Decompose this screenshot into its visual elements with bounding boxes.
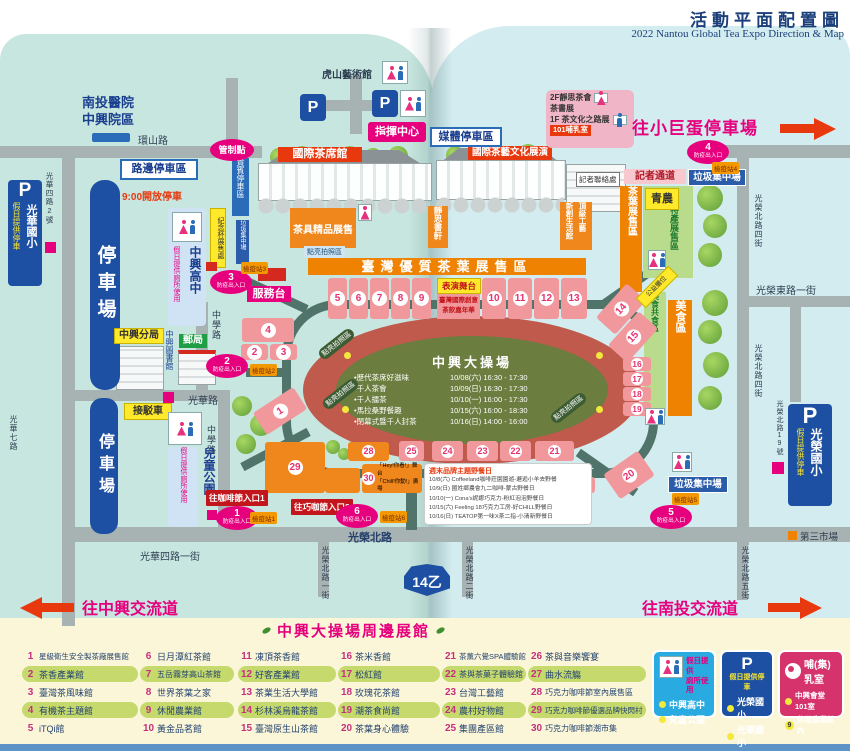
zhongxing-high-label: 中興高中 <box>187 246 204 294</box>
quarantine-station-4: 檢疫站4 <box>712 162 739 174</box>
police-building <box>116 346 164 390</box>
male-icon <box>416 97 421 111</box>
legend-label: 有機茶主題館 <box>39 704 93 717</box>
event-time: 10/15(六) 16:00 - 18:30 <box>450 406 528 417</box>
service-desk-label: 服務台 <box>247 286 291 302</box>
tree-icon <box>698 386 722 410</box>
legend-item: 16茶米香館 <box>338 648 440 664</box>
legend-num: 19 <box>338 705 355 716</box>
female-icon <box>674 455 683 469</box>
legend-num: 10 <box>140 723 157 734</box>
legend-item: 3臺灣茶風味館 <box>22 684 138 700</box>
bullet-dot <box>727 733 734 740</box>
legend-item: 15臺灣原生山茶館 <box>238 720 336 736</box>
legend-label: iTQi館 <box>39 722 65 735</box>
expo-map: 活動平面配置圖 2022 Nantou Global Tea Expo Dire… <box>0 0 850 751</box>
booth-9: 9 <box>412 278 431 319</box>
top-craft-label: 頂級工藝 <box>577 202 588 250</box>
booth-number: 13 <box>567 291 582 306</box>
road-left-main <box>62 146 75 626</box>
legend-label: 茶薰六覺SPA體驗館 <box>459 651 526 662</box>
p-icon: P <box>788 404 832 428</box>
info-toilet-box: 假日提供 廁所使用 中興高中 兒童公園 <box>652 650 716 718</box>
female-icon <box>663 660 672 674</box>
bullet-dot <box>727 705 734 712</box>
legend-label: 茶與茶菓子體驗館 <box>459 669 523 680</box>
legend-label: 休閒農業館 <box>157 704 202 717</box>
stadium-event: •歷代茶席好滋味10/08(六) 16:30 - 17:30 <box>354 373 590 384</box>
legend-label: 曲水流觴 <box>545 668 581 681</box>
booth-4: 4 <box>242 318 294 342</box>
road-label-guangrong-n5: 光榮北路五街 <box>740 546 751 600</box>
parking-guangrong-box: P 假日提供停車 光榮國小 <box>788 404 832 506</box>
third-market-label: 第三市場 <box>800 529 838 543</box>
quarantine-station-3: 檢疫站3 <box>241 262 268 274</box>
legend-label: 茶香產業館 <box>39 668 84 681</box>
quarantine-station-1: 檢疫站1 <box>250 512 277 524</box>
bottom-bar <box>0 744 850 751</box>
booth-number: 1 <box>270 401 291 422</box>
tree-icon <box>702 290 728 316</box>
event-name: •千人茶會 <box>354 384 450 395</box>
legend-label: 巧克力咖啡節室內展售區 <box>545 687 633 698</box>
booth-number: 18 <box>631 388 643 400</box>
male-icon <box>398 66 403 80</box>
legend-num: 1 <box>22 651 39 662</box>
epidemic-entrance-6: 6防疫出入口 <box>336 504 378 528</box>
road-bottom-main <box>75 527 850 542</box>
restroom-icon <box>400 90 426 117</box>
right-arrow-icon <box>800 597 822 619</box>
right-arrow-bar <box>768 603 800 612</box>
holiday-parking-label: 假日提供停車 <box>11 202 22 250</box>
epidemic-entrance-2: 2防疫出入口 <box>206 354 248 378</box>
booth-8: 8 <box>391 278 410 319</box>
parking-lot-bar-2: 停車場 <box>90 398 118 534</box>
legend-num: 8 <box>140 687 157 698</box>
bullet-dot <box>659 701 666 708</box>
booth-28: 28 <box>348 442 389 461</box>
jingsi-info-box: 2F靜思茶會 茶書展 1F 茶文化之路展 101哺乳室 <box>546 90 634 148</box>
legend-label: 茶業生活大學館 <box>255 686 318 699</box>
stadium-title: 中興大操場 <box>432 352 512 371</box>
nursing-icon <box>785 663 801 679</box>
legend-num: 18 <box>338 687 355 698</box>
quarantine-station-6: 檢疫站6 <box>380 511 407 523</box>
road-right-small <box>790 307 801 402</box>
vip-parking-strip: 貴賓停車區 <box>232 158 249 216</box>
booth-number: 28 <box>362 445 375 458</box>
toilet-title-2: 廁所使用 <box>686 676 709 695</box>
event-name: •馬拉桑野餐趣 <box>354 406 450 417</box>
restroom-icon <box>645 408 665 425</box>
legend-label: 臺灣茶風味館 <box>39 686 93 699</box>
entrance-number: 5 <box>650 508 692 518</box>
post-office-label: 郵局 <box>179 334 207 348</box>
road-label-guanghua4-1st: 光華四路一街 <box>140 548 200 563</box>
booth-5: 5 <box>328 278 347 319</box>
legend-item: 12好客產業館 <box>238 666 336 682</box>
legend-item: 24農村好物館 <box>442 702 526 718</box>
legend-label: 臺灣原生山茶館 <box>255 722 318 735</box>
open-930-label: 9:00開放停車 <box>122 188 182 203</box>
parking-guanghua-box: P 假日提供停車 光華國小 <box>8 180 42 286</box>
booth-6: 6 <box>349 278 368 319</box>
young-farmer-label: 青農 <box>645 188 679 210</box>
legend-label: 茶葉身心體驗 <box>355 722 409 735</box>
legend-num: 17 <box>338 669 355 680</box>
road-label-guangrong-19: 光榮北路19號 <box>774 400 784 456</box>
nursing-item: 中興會堂101室 <box>795 690 837 712</box>
jingsi-shop-box: 靜思書軒 <box>428 206 448 248</box>
legend-item: 10黃金品茗館 <box>140 720 234 736</box>
badge-9-icon: 9 <box>785 721 794 730</box>
third-market-marker <box>788 531 797 540</box>
hospital-line1: 南投醫院 <box>82 95 172 112</box>
legend-num: 29 <box>528 705 545 716</box>
legend-num: 13 <box>238 687 255 698</box>
event-time: 10/16(日) 14:00 - 16:00 <box>450 417 528 428</box>
booth-18: 18 <box>623 387 651 401</box>
legend-label: 松紅館 <box>355 668 382 681</box>
restroom-icon <box>168 412 202 445</box>
male-icon <box>674 660 679 674</box>
building-tea-culture <box>436 160 566 200</box>
marker-square <box>45 242 56 253</box>
parking-lot-label: 停車場 <box>92 433 116 499</box>
picnic-line: 10/16(日) TEATOP第一味X茶二指-小清新野餐日 <box>429 513 587 522</box>
control-point-label: 管制點 <box>210 139 254 161</box>
entrance-number: 6 <box>336 507 378 517</box>
photo-spot-label: 點亮拍照區 <box>304 246 345 258</box>
picnic-line: 10/15(六) Feeling 18巧克力工房-好CHILL野餐日 <box>429 504 587 513</box>
booth-12: 12 <box>534 278 559 319</box>
picnic-title: 週末品牌主題野餐日 <box>429 466 587 476</box>
road-label-guangrong-n4-b: 光榮北路四街 <box>753 344 764 398</box>
trash-strip-small: 垃圾集中場 <box>236 220 249 264</box>
event-time: 10/09(日) 16:30 - 17:30 <box>450 384 528 395</box>
entrance-number: 3 <box>210 273 252 283</box>
legend-label: 世界茶葉之家 <box>157 686 211 699</box>
legend-num: 21 <box>442 651 459 662</box>
male-icon <box>188 422 193 436</box>
jingsi-shop-label: 靜思書軒 <box>432 206 444 248</box>
booth-number: 17 <box>631 373 643 385</box>
legend-item: 28巧克力咖啡節室內展售區 <box>528 684 646 700</box>
legend-item: 29巧克力咖啡節優選品牌快閃村 <box>528 702 646 718</box>
legend-num: 23 <box>442 687 459 698</box>
legend-item: 9休閒農業館 <box>140 702 234 718</box>
legend-num: 6 <box>140 651 157 662</box>
press-way-label: 記者通道 <box>624 169 686 184</box>
legend-item: 18玫瑰花茶館 <box>338 684 440 700</box>
to-dome-label: 往小巨蛋停車場 <box>632 114 758 139</box>
event-time: 10/08(六) 16:30 - 17:30 <box>450 373 528 384</box>
picnic-line: 10/9(日) 國姓鄉農會九二咖啡-蒙古野餐日 <box>429 485 587 494</box>
booth-16: 16 <box>623 357 651 371</box>
event-name: •千人擂茶 <box>354 395 450 406</box>
restroom-icon <box>672 452 692 472</box>
legend-label: 黃金品茗館 <box>157 722 202 735</box>
female-icon <box>649 253 658 267</box>
legend-label: 玫瑰花茶館 <box>355 686 400 699</box>
event-time: 10/10(一) 16:00 - 17:30 <box>450 395 528 406</box>
food-share-label: 美食共食區 <box>650 292 661 416</box>
booth-number: 2 <box>247 345 262 360</box>
legend-label: 五岳霧芽高山茶館 <box>157 669 221 680</box>
legend-item: 19潮茶食尚館 <box>338 702 440 718</box>
female-icon <box>647 410 656 424</box>
booth-24: 24 <box>432 441 463 461</box>
legend-item: 25集團產區館 <box>442 720 526 736</box>
teaware-sale-box: 茶具精品展售 <box>290 208 356 248</box>
legend-num: 9 <box>140 705 157 716</box>
booth-number: 11 <box>513 291 528 306</box>
booth-number: 6 <box>351 291 366 306</box>
craft-hall-box: 新創生活館 頂級工藝 <box>560 202 592 250</box>
parking-lot-label: 停車場 <box>92 245 119 326</box>
legend-num: 3 <box>22 687 39 698</box>
parking-item: 光華國小 <box>737 723 767 749</box>
booth-25: 25 <box>399 441 424 461</box>
female-icon <box>405 97 414 111</box>
booth-30-text: 「Hey!你看!」舞台 「Chill!你動!」廣場 <box>377 463 422 494</box>
female-icon <box>597 91 606 105</box>
booth-number: 4 <box>261 323 276 338</box>
road-label-guangrong-n2: 光榮北路二街 <box>464 546 475 600</box>
legend-label: 茶與音樂饗宴 <box>545 650 599 663</box>
entrance-label: 防疫出入口 <box>207 367 247 373</box>
toilet-title-1: 假日提供 <box>686 656 709 675</box>
legend-label: 巧克力咖啡節潮市集 <box>545 723 617 734</box>
food-strip: 美食區 <box>668 300 692 416</box>
holiday-toilet-label: 假日提供廁所使用 <box>171 246 181 302</box>
toilet-item: 兒童公園 <box>669 713 705 726</box>
road-right-main <box>737 155 749 545</box>
marker-square <box>163 392 174 403</box>
road-label-guanghua7: 光華七路 <box>8 415 19 451</box>
road-label-guangrong-n4-a: 光榮北路四街 <box>753 194 764 248</box>
hospital-line2: 中興院區 <box>82 112 172 129</box>
legend-label: 杉林溪烏龍茶館 <box>255 704 318 717</box>
guanghua-es-label: 光華國小 <box>23 202 39 250</box>
picnic-line: 10/10(一) Cona's妮娜巧克力-粉紅泡泡野餐日 <box>429 495 587 504</box>
legend-num: 11 <box>238 651 255 662</box>
legend-num: 28 <box>528 687 545 698</box>
hey-line2: 「Chill!你動!」廣場 <box>377 479 418 493</box>
legend-label: 集團產區館 <box>459 722 504 735</box>
f2-line1: 2F靜思茶會 <box>550 93 591 104</box>
legend-num: 15 <box>238 723 255 734</box>
tiger-hill-label: 虎山藝術館 <box>322 66 372 81</box>
restroom-icon <box>172 212 202 242</box>
tree-icon <box>697 185 723 211</box>
building-b-awnings <box>436 196 564 213</box>
female-icon <box>177 422 186 436</box>
entrance-label: 防疫出入口 <box>211 283 251 289</box>
legend-num: 20 <box>338 723 355 734</box>
road-guangrong-e1 <box>748 296 850 307</box>
holiday-parking-label: 假日提供停車 <box>795 428 806 476</box>
tree-icon <box>703 352 729 378</box>
hospital-marker <box>92 133 130 142</box>
booth-29-extension <box>325 468 360 493</box>
left-arrow-bar <box>42 603 74 612</box>
booth-number: 21 <box>548 445 561 458</box>
children-park-toilet-box: 假日提供廁所使用 <box>168 447 198 527</box>
map-subtitle: 2022 Nantou Global Tea Expo Direction & … <box>500 28 844 40</box>
trash-label-right: 垃圾集中場 <box>668 476 728 493</box>
legend-title: 中興大操場周邊展館 <box>262 620 445 641</box>
booth-30: 30 「Hey!你看!」舞台 「Chill!你動!」廣場 <box>362 464 422 493</box>
legend-num: 22 <box>442 669 459 680</box>
booth-number: 24 <box>441 445 454 458</box>
stadium-infield: 中興大操場 •歷代茶席好滋味10/08(六) 16:30 - 17:30 •千人… <box>336 336 608 444</box>
info-parking-box: P 假日提供停車 光榮國小 光華國小 <box>720 650 774 718</box>
booth-17: 17 <box>623 372 651 386</box>
legend-item: 8世界茶葉之家 <box>140 684 234 700</box>
legend-num: 7 <box>140 669 157 680</box>
booth-number: 10 <box>487 291 502 306</box>
legend-item: 27曲水流觴 <box>528 666 646 682</box>
intl-tea-hall-banner: 國際茶席館 <box>278 147 362 162</box>
booth-number: 3 <box>276 345 291 360</box>
shuttle-label: 接駁車 <box>124 403 172 420</box>
legend-item: 14杉林溪烏龍茶館 <box>238 702 336 718</box>
road-north-stub <box>226 78 238 148</box>
light-dot <box>596 352 603 359</box>
marker-square <box>206 262 217 271</box>
light-dot <box>344 352 351 359</box>
booth-number: 7 <box>372 291 387 306</box>
tea-drink-carnival: 臺灣國際創意 茶飲嘉年華 <box>437 294 480 319</box>
tea-banner: 臺灣優質茶葉展售區 <box>308 258 586 275</box>
entrance-label: 防疫出入口 <box>688 153 728 159</box>
marker-square <box>772 462 784 474</box>
legend-item: 5iTQi館 <box>22 720 138 736</box>
tea-sale-strip: 茶葉展售區 <box>620 186 642 292</box>
legend-item: 26茶與音樂饗宴 <box>528 648 646 664</box>
legend-item: 1星級衛生安全製茶廠展售館 <box>22 648 138 664</box>
leaf-icon <box>261 626 271 635</box>
legend-num: 24 <box>442 705 459 716</box>
legend-item: 21茶薰六覺SPA體驗館 <box>442 648 526 664</box>
road-label-guangrong-n: 光榮北路 <box>348 529 392 545</box>
hospital-label: 南投醫院 中興院區 <box>82 95 172 129</box>
stage-label: 表演舞台 <box>437 278 481 294</box>
quarantine-station-5: 檢疫站5 <box>672 493 699 505</box>
legend-num: 16 <box>338 651 355 662</box>
holiday-toilet-title: 假日提供 廁所使用 <box>686 656 709 695</box>
light-dot <box>342 406 349 413</box>
left-arrow-icon <box>20 597 42 619</box>
legend-num: 14 <box>238 705 255 716</box>
road-label-huanshan: 環山路 <box>138 132 168 147</box>
vip-parking-label: 貴賓停車區 <box>235 158 246 216</box>
media-parking-label: 媒體停車區 <box>430 127 502 147</box>
police-label: 中興分局 <box>114 328 164 344</box>
restroom-icon <box>659 656 683 678</box>
booth-number: 23 <box>476 445 489 458</box>
f1-line: 1F 茶文化之路展 <box>550 115 610 126</box>
stadium-event: •千人茶會10/09(日) 16:30 - 17:30 <box>354 384 590 395</box>
male-icon <box>685 455 690 469</box>
p-icon: P <box>8 180 42 202</box>
female-icon <box>361 206 370 220</box>
tea-sale-strip-label: 茶葉展售區 <box>624 186 639 292</box>
nursing-101-label: 101哺乳室 <box>550 125 591 135</box>
restroom-icon <box>382 61 408 84</box>
tree-icon <box>698 320 722 344</box>
road-label-guanghua4-2: 光華四路2號 <box>44 172 55 225</box>
booth-number: 16 <box>631 358 643 370</box>
legend-item: 30巧克力咖啡節潮市集 <box>528 720 646 736</box>
legend-item: 2茶香產業館 <box>22 666 138 682</box>
legend-item: 17松紅館 <box>338 666 440 682</box>
nursing-title: 哺(集)乳室 <box>804 656 837 686</box>
event-name: •閉幕式暨千人封茶 <box>354 417 450 428</box>
bullet-dot <box>659 716 666 723</box>
legend-num: 5 <box>22 723 39 734</box>
tea-culture-banner: 國際茶藝文化展演 <box>468 146 552 160</box>
booth-7: 7 <box>370 278 389 319</box>
legend-label: 潮茶食尚館 <box>355 704 400 717</box>
info-nursing-box: 哺(集)乳室 中興會堂101室 9 休閒農業館內 <box>778 650 844 718</box>
leaf-icon <box>435 626 445 635</box>
legend-item: 13茶業生活大學館 <box>238 684 336 700</box>
tree-icon <box>698 243 722 267</box>
legend-label: 凍頂茶香館 <box>255 650 300 663</box>
building-intl-tea-hall <box>258 163 432 201</box>
children-park-label: 兒童公園 <box>201 447 218 495</box>
quarantine-station-2: 檢疫站2 <box>250 364 277 376</box>
restroom-icon <box>613 115 627 125</box>
tree-icon <box>232 396 252 416</box>
booth-number: 15 <box>622 326 643 347</box>
booth-number: 20 <box>619 465 640 486</box>
new-life-hall-label: 新創生活館 <box>564 202 575 250</box>
female-icon <box>179 220 188 234</box>
legend-item: 6日月潭紅茶館 <box>140 648 234 664</box>
legend-item: 11凍頂茶香館 <box>238 648 336 664</box>
legend-num: 25 <box>442 723 459 734</box>
legend-label: 星級衛生安全製茶廠展售館 <box>39 651 129 662</box>
guangrong-es-label: 光榮國小 <box>808 428 825 476</box>
holiday-parking-title: 假日提供停車 <box>727 672 767 692</box>
restroom-icon <box>358 204 372 221</box>
nursing-item: 休閒農業館內 <box>797 714 837 736</box>
restroom-icon <box>648 250 666 270</box>
hey-line1: 「Hey!你看!」舞台 <box>377 463 417 477</box>
entrance-label: 防疫出入口 <box>651 518 691 524</box>
food-strip-label: 美食區 <box>672 300 688 416</box>
male-icon <box>660 253 665 267</box>
booth-number: 12 <box>539 291 554 306</box>
entrance-number: 2 <box>206 357 248 367</box>
booth-13: 13 <box>561 278 587 319</box>
legend-label: 日月潭紅茶館 <box>157 650 211 663</box>
tree-icon <box>703 214 727 238</box>
male-icon <box>190 220 195 234</box>
booth-23: 23 <box>467 441 498 461</box>
legend-num: 2 <box>22 669 39 680</box>
booth-number: 22 <box>509 445 522 458</box>
to-zhongxing-ic-label: 往中興交流道 <box>82 595 178 619</box>
picnic-line: 10/8(六) Coffeeland咖啡莊園園遊-邂逅小羊去野餐 <box>429 476 587 485</box>
legend-label: 台灣工藝館 <box>459 686 504 699</box>
booth-number: 30 <box>362 472 375 485</box>
legend-item: 4有機茶主題館 <box>22 702 138 718</box>
